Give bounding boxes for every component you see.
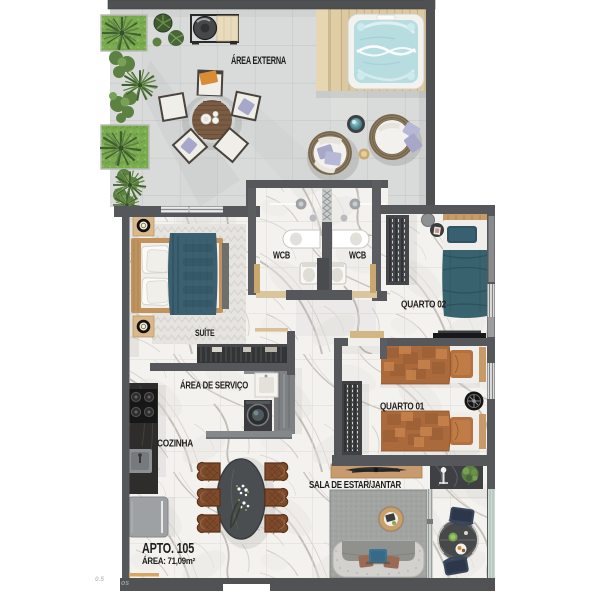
svg-text:WCB: WCB	[273, 251, 290, 262]
svg-text:APTO. 105: APTO. 105	[142, 540, 194, 557]
svg-text:SUÍTE: SUÍTE	[195, 328, 215, 339]
svg-text:QUARTO 02: QUARTO 02	[401, 300, 447, 311]
svg-text:COZINHA: COZINHA	[157, 439, 193, 450]
svg-text:QUARTO 01: QUARTO 01	[380, 402, 425, 413]
svg-text:os: os	[121, 580, 129, 587]
svg-text:ÁREA EXTERNA: ÁREA EXTERNA	[231, 54, 286, 67]
svg-text:WCB: WCB	[349, 251, 366, 262]
svg-text:ÁREA DE SERVIÇO: ÁREA DE SERVIÇO	[180, 379, 248, 392]
svg-text:ÁREA: 71,09m²: ÁREA: 71,09m²	[142, 556, 195, 566]
svg-text:0.5: 0.5	[95, 576, 104, 583]
svg-text:SALA DE ESTAR/JANTAR: SALA DE ESTAR/JANTAR	[309, 480, 402, 491]
